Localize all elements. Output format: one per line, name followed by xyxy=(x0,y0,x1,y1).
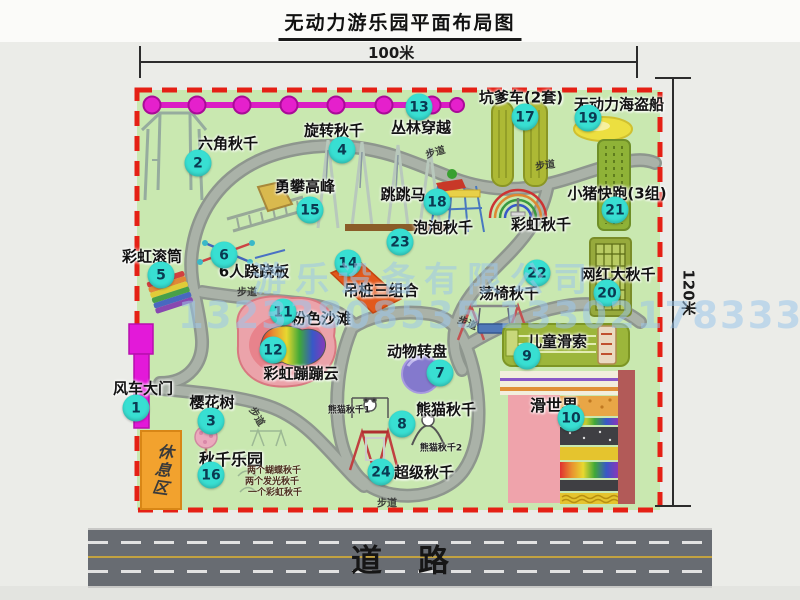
dimension-line-right xyxy=(672,78,674,506)
item-18-label: 跳跳马 xyxy=(380,184,425,205)
item-13-badge: 13 xyxy=(406,94,433,121)
rest-area-label: 休息区 xyxy=(145,442,176,499)
footpath-label-6: 步道 xyxy=(377,495,397,510)
item-6-badge: 6 xyxy=(211,242,238,269)
page-title: 无动力游乐园平面布局图 xyxy=(278,8,521,41)
item-4-badge: 4 xyxy=(329,137,356,164)
item-12-label: 彩虹蹦蹦云 xyxy=(263,363,338,384)
item-8-label: 熊猫秋千 xyxy=(416,399,476,420)
item-24-label: 超级秋千 xyxy=(394,462,454,483)
item-11-label: 粉色沙滩 xyxy=(291,308,351,329)
item-14-badge: 14 xyxy=(335,250,362,277)
item-1-label: 风车大门 xyxy=(113,378,173,399)
item-20-badge: 20 xyxy=(594,280,621,307)
item-9-badge: 9 xyxy=(514,343,541,370)
footpath-label-3: 步道 xyxy=(534,155,556,173)
dimension-tick-right-top xyxy=(655,77,691,79)
playground-layout-map: 无动力游乐园平面布局图 100米 120米 xyxy=(0,0,800,600)
item-18-badge: 18 xyxy=(424,189,451,216)
item-5-badge: 5 xyxy=(148,262,175,289)
item-2-label: 六角秋千 xyxy=(198,133,258,154)
item-16-badge: 16 xyxy=(198,462,225,489)
item-4-label: 旋转秋千 xyxy=(304,120,364,141)
item-15-badge: 15 xyxy=(297,197,324,224)
panda-swing-2-label: 熊猫秋千2 xyxy=(420,441,462,454)
item-8-badge: 8 xyxy=(389,411,416,438)
item-14-label: 吊桩三组合 xyxy=(343,280,418,301)
dimension-tick-top-left xyxy=(139,46,141,78)
item-15-label: 勇攀高峰 xyxy=(275,176,335,197)
footpath-label-1: 步道 xyxy=(237,284,257,299)
swing-park-note-1: 两个蝴蝶秋千 xyxy=(247,466,301,477)
item-11-badge: 11 xyxy=(270,299,297,326)
swing-park-note-2: 两个发光秋千 xyxy=(245,477,299,488)
panda-swing-1-label: 熊猫秋千1 xyxy=(328,403,370,416)
slide-world-structure xyxy=(500,370,635,504)
item-1-badge: 1 xyxy=(123,395,150,422)
item-3-badge: 3 xyxy=(198,408,225,435)
swing-park-note-3: 一个彩虹秋千 xyxy=(248,488,302,499)
item-23-label: 泡泡秋千 xyxy=(413,217,473,238)
item-10-badge: 10 xyxy=(558,405,585,432)
item-22-badge: 22 xyxy=(524,260,551,287)
item-24-badge: 24 xyxy=(368,459,395,486)
item-22-label: 荡椅秋千 xyxy=(479,283,539,304)
item-21-badge: 21 xyxy=(602,197,629,224)
item-12-badge: 12 xyxy=(260,337,287,364)
item-23-badge: 23 xyxy=(387,229,414,256)
item-7-badge: 7 xyxy=(427,360,454,387)
item-20-label: 网红大秋千 xyxy=(580,264,655,285)
rainbow-swing-label: 彩虹秋千 xyxy=(511,214,571,235)
dimension-tick-top-right xyxy=(636,46,638,78)
item-2-badge: 2 xyxy=(185,150,212,177)
item-17-badge: 17 xyxy=(512,104,539,131)
dimension-height-label: 120米 xyxy=(679,269,700,315)
dimension-width-label: 100米 xyxy=(368,42,414,63)
item-19-badge: 19 xyxy=(575,105,602,132)
rest-area-box: 休息区 xyxy=(140,430,182,510)
dimension-tick-right-bottom xyxy=(655,505,691,507)
item-7-label: 动物转盘 xyxy=(387,341,447,362)
